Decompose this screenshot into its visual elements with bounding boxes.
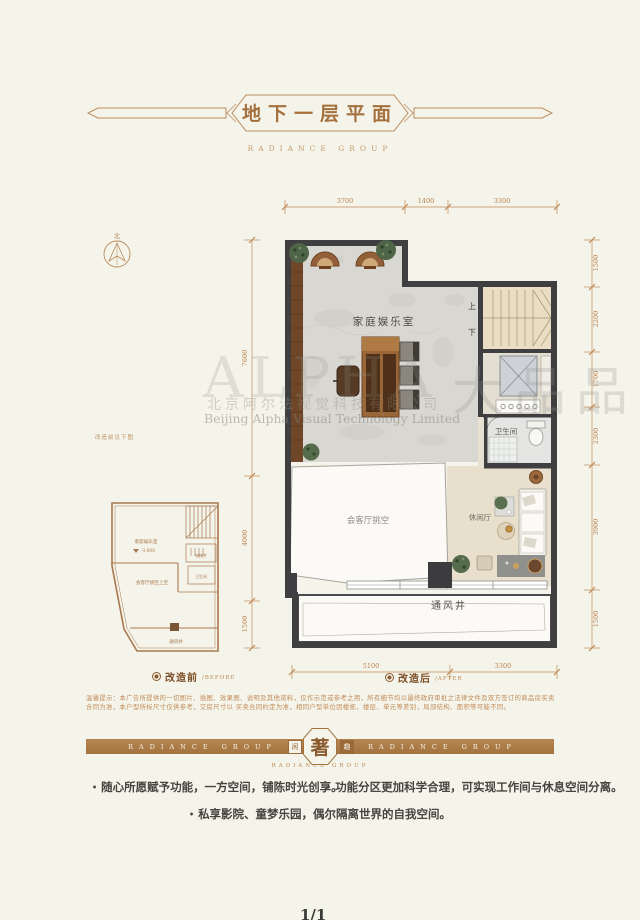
side-note: 改造前见下图 [95,433,134,441]
svg-text:5100: 5100 [363,662,380,670]
disclaimer-line2: 买卖合同约定为准，相同户型单位因楼栋、楼层、单元等差别，局部结构、面积等可能不同… [236,704,511,711]
caption-bullet-icon [152,672,161,681]
seal-right: 趣 [340,740,354,754]
compass-icon: 北 [104,232,130,267]
staircase [483,287,551,349]
svg-text:4000: 4000 [241,530,249,547]
disclaimer: 温馨提示：本广告所提供的一切图片、插图、效果图、说明及其他资料，仅作示范或参考之… [86,694,556,712]
room-label-bathroom: 卫生间 [495,426,518,436]
plant [303,444,320,461]
stairs-up-label: 上 [468,302,476,311]
after-caption: 改造后 /AFTER [385,670,462,685]
plant [289,243,309,263]
page-marker: 1/1 [300,906,326,920]
before-room-void: 会客厅挑空上空 [136,579,169,586]
room-label-vent: 通风井 [431,599,467,612]
banner-right-text: RADIANCE GROUP [360,743,525,751]
svg-text:3300: 3300 [495,662,512,670]
vanity-counter [496,400,540,413]
before-room-vent: 通风井 [169,638,183,645]
seal-center-char: 著 [304,729,336,764]
before-room-family: 家庭娱乐室 [135,538,158,545]
before-caption-name: 改造前 [165,669,198,684]
svg-text:3300: 3300 [494,197,511,205]
after-caption-tag: /AFTER [435,676,462,682]
before-caption-tag: /BEFORE [202,675,235,681]
svg-text:1500: 1500 [241,616,249,633]
elevator [500,356,551,396]
svg-text:2300: 2300 [592,428,600,445]
svg-text:1400: 1400 [418,197,435,205]
plan-before: 家庭娱乐室 -3.000 会客厅挑空上空 电梯井 卫生间 通风井 [112,503,218,651]
room-label-void: 会客厅挑空 [347,515,390,526]
svg-text:3900: 3900 [592,519,600,536]
seal-left: 闲 [288,740,302,754]
before-caption: 改造前 /BEFORE [152,669,235,684]
svg-text:7600: 7600 [241,350,249,367]
page-subtitle: RADIANCE GROUP [200,144,440,153]
seal-center-badge: 著 [303,728,337,765]
plan-after: 家庭娱乐室 上 下 卫生间 会客厅挑空 休闲厅 通风井 [241,197,600,679]
game-table [362,337,399,417]
caption-bullet-icon [385,673,394,682]
vent-shaft [298,595,551,642]
bullet-point: 私享影院、童梦乐园，偶尔隔离世界的自我空间。 [0,806,640,822]
room-label-family: 家庭娱乐室 [353,315,416,328]
before-elevation: -3.000 [141,549,155,554]
svg-text:1700: 1700 [592,371,600,388]
before-room-elevator: 电梯井 [195,553,207,558]
stairs-down-label: 下 [468,328,476,337]
svg-text:1500: 1500 [592,611,600,628]
svg-text:1500: 1500 [592,255,600,272]
page-title: 地下一层平面 [240,99,400,126]
bullet-point: 功能分区更加科学合理，可实现工作间与休息空间分离。 [326,779,623,795]
svg-text:3700: 3700 [337,197,354,205]
before-room-bathroom: 卫生间 [195,574,207,579]
banner-left-text: RADIANCE GROUP [120,743,285,751]
bathroom-fixtures [487,417,551,463]
after-caption-name: 改造后 [398,670,431,685]
column [428,562,452,588]
plant [376,240,396,260]
wood-wall [291,246,303,462]
plant [452,555,470,573]
bullet-point: 随心所愿赋予功能，一方空间，铺陈时光创享。 [92,779,343,795]
compass-north-label: 北 [114,232,121,240]
room-label-lounge: 休闲厅 [469,512,492,522]
brochure-page: 北 [0,0,640,920]
svg-text:2200: 2200 [592,311,600,328]
